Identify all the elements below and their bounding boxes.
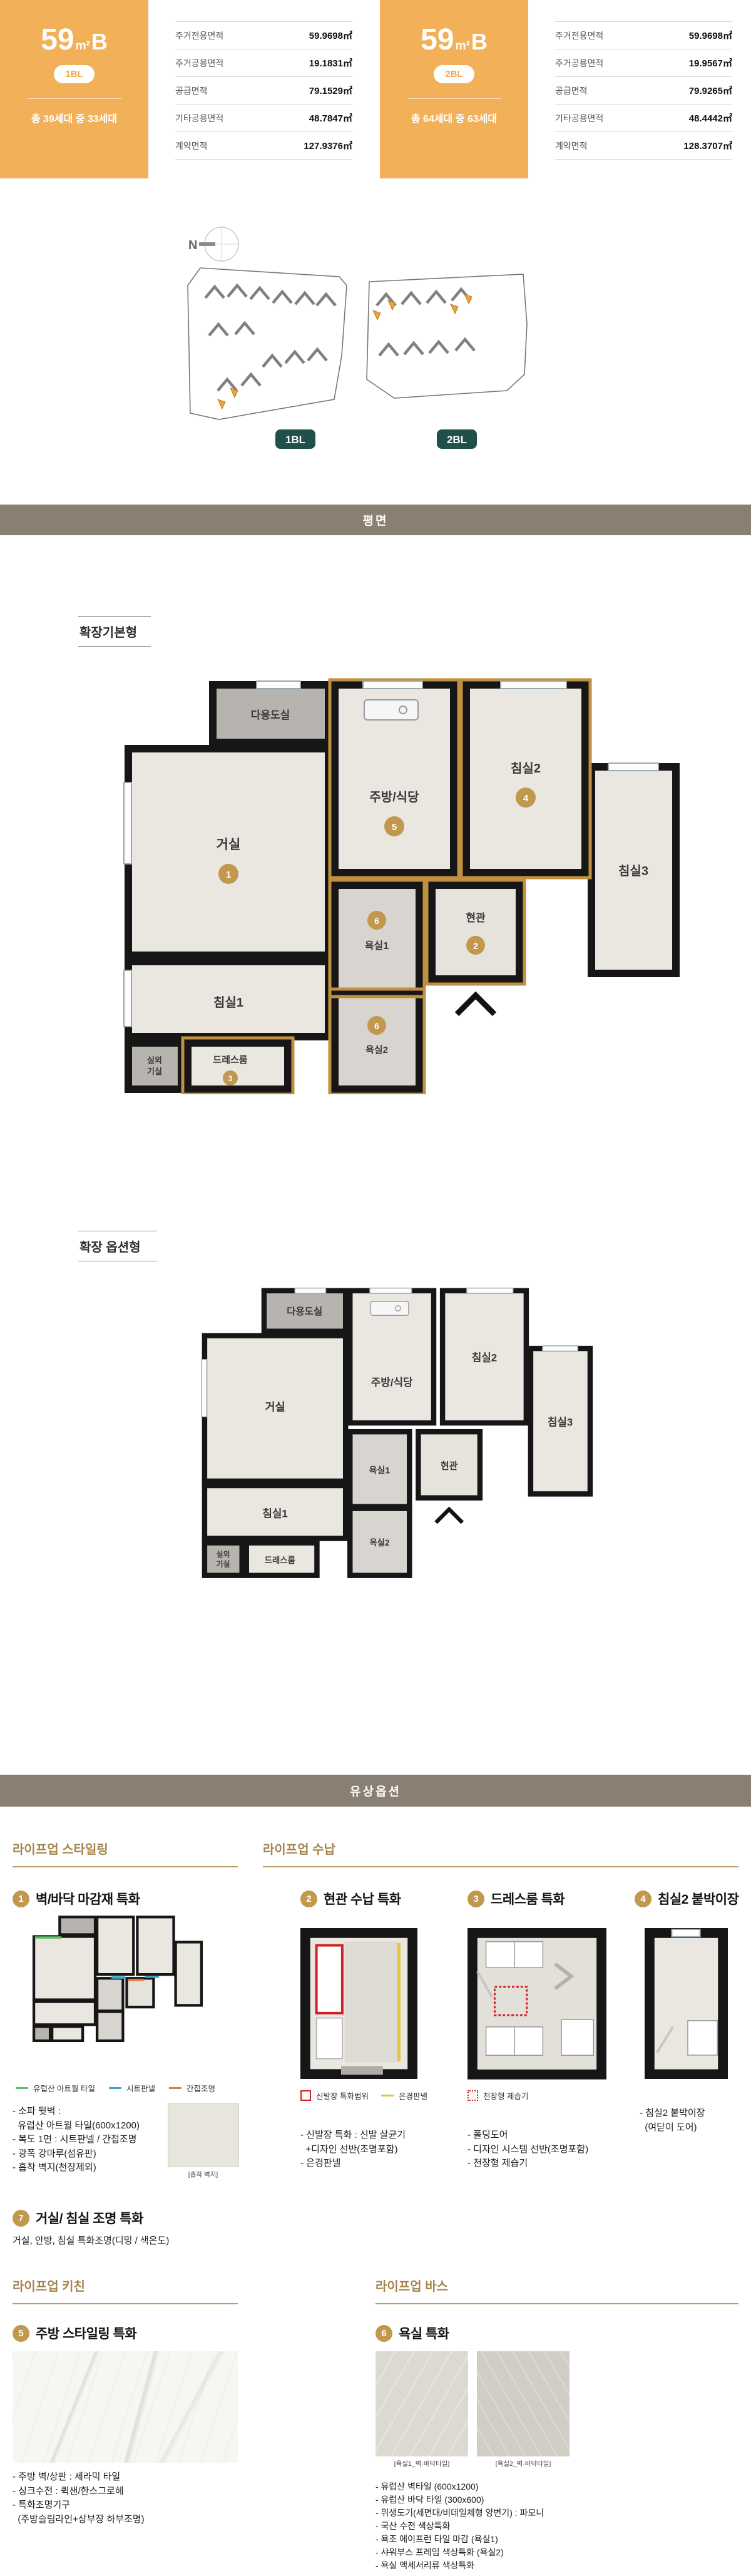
area-value: 59.9698㎡ — [689, 29, 732, 42]
svg-text:다용도실: 다용도실 — [287, 1306, 322, 1317]
item3-bullets: - 폴딩도어 - 디자인 시스템 선반(조명포함) - 천장형 제습기 — [467, 2128, 624, 2171]
item2-header: 2 현관 수납 특화 — [300, 1889, 401, 1908]
section-bar-floor-plan: 평면 — [0, 505, 751, 535]
bath1-tile-caption: [욕실1_벽·바닥타일] — [375, 2459, 468, 2468]
site-block-badges: 1BL 2BL — [275, 429, 477, 449]
households-text: 총 64세대 중 63세대 — [411, 110, 497, 125]
room-entrance — [432, 885, 519, 979]
svg-text:실외: 실외 — [216, 1549, 230, 1559]
item2-legend: 신발장 특화범위 은경판넬 — [300, 2090, 427, 2101]
legend-dehumidifier: 천장형 제습기 — [483, 2090, 528, 2101]
item2-bullets: - 신발장 특화 : 신발 살균기 +디자인 선반(조명포함) - 은경판넬 — [300, 2128, 451, 2171]
svg-text:욕실2: 욕실2 — [369, 1538, 389, 1547]
legend-mirror-panel: 은경판넬 — [399, 2090, 427, 2101]
area-label: 주거공용면적 — [555, 57, 603, 69]
room-bath2 — [335, 994, 419, 1089]
unit-size-unit: m² — [76, 40, 90, 52]
brochure-page: 59 m² B 1BL 총 39세대 중 33세대 주거전용면적59.9698㎡… — [0, 0, 751, 2576]
svg-text:거실: 거실 — [265, 1400, 285, 1413]
area-label: 기타공용면적 — [555, 112, 603, 125]
unit-size-type: B — [91, 31, 108, 53]
bed2-closet-diagram — [645, 1928, 728, 2079]
item1-number-badge: 1 — [13, 1891, 29, 1907]
item6-number-badge: 6 — [375, 2325, 392, 2342]
table-row: 기타공용면적48.7847㎡ — [175, 104, 352, 131]
num-kitchen: 5 — [392, 822, 397, 833]
bath1-tile-image — [375, 2351, 468, 2456]
item7-header: 7 거실/ 침실 조명 특화 — [13, 2209, 143, 2227]
area-value: 48.4442㎡ — [689, 111, 732, 125]
area-label: 계약면적 — [175, 140, 208, 152]
room-dress — [188, 1043, 288, 1089]
label-utility: 다용도실 — [251, 709, 290, 721]
svg-text:드레스룸: 드레스룸 — [265, 1556, 295, 1565]
block-badge: 2BL — [434, 65, 474, 83]
table-row: 공급면적79.9265㎡ — [555, 76, 732, 104]
item5-bullets: - 주방 벽/상판 : 세라믹 타일 - 싱크수전 : 퀵샌/한스그로헤 - 특… — [13, 2470, 238, 2527]
item2-number-badge: 2 — [300, 1891, 317, 1907]
divider — [28, 98, 121, 99]
legend-artwall: 유럽산 아트월 타일 — [33, 2082, 95, 2094]
entrance-arrow-icon — [457, 995, 494, 1014]
table-row: 주거전용면적59.9698㎡ — [175, 21, 352, 49]
bath-title: 라이프업 바스 — [375, 2276, 738, 2304]
item7-number-badge: 7 — [13, 2210, 29, 2227]
room-bath1 — [335, 885, 419, 992]
area-table-2bl: 주거전용면적59.9698㎡ 주거공용면적19.9567㎡ 공급면적79.926… — [528, 0, 751, 178]
households-text: 총 39세대 중 33세대 — [31, 110, 117, 125]
orange-line-icon — [169, 2087, 181, 2089]
unit-size-unit: m² — [456, 40, 470, 52]
num-bed2: 4 — [523, 793, 529, 804]
blue-line-icon — [109, 2087, 121, 2089]
unit-1bl-orange-panel: 59 m² B 1BL 총 39세대 중 33세대 — [0, 0, 148, 178]
unit-size-number: 59 — [41, 25, 74, 55]
area-label: 주거공용면적 — [175, 57, 223, 69]
item4-title: 침실2 붙박이장 — [658, 1889, 738, 1908]
svg-text:침실1: 침실1 — [262, 1507, 287, 1520]
entrance-storage-diagram — [300, 1928, 417, 2079]
unit-size: 59 m² B — [421, 25, 488, 55]
room-living — [128, 749, 329, 955]
shoe-cabinet-highlight — [317, 1946, 342, 2013]
entrance-arrow-icon — [436, 1509, 462, 1522]
item6-header: 6 욕실 특화 — [375, 2324, 449, 2343]
item7-description: 거실, 안방, 침실 특화조명(디밍 / 색온도) — [13, 2234, 169, 2247]
floor-plan-option: 다용도실 거실 주방/식당 침실2 침실3 욕실1 현관 침실1 실외 기실 드… — [163, 1285, 595, 1579]
area-value: 79.1529㎡ — [309, 84, 352, 97]
label-bath1: 욕실1 — [365, 940, 389, 952]
area-value: 128.3707㎡ — [683, 139, 732, 152]
table-row: 기타공용면적48.4442㎡ — [555, 104, 732, 131]
label-dress: 드레스룸 — [213, 1055, 247, 1065]
dressroom-diagram — [467, 1928, 606, 2080]
label-living: 거실 — [217, 838, 241, 852]
unit-2bl-orange-panel: 59 m² B 2BL 총 64세대 중 63세대 — [380, 0, 528, 178]
svg-text:침실3: 침실3 — [548, 1415, 573, 1428]
label-bed3: 침실3 — [618, 864, 648, 878]
label-bed2: 침실2 — [511, 761, 541, 776]
table-row: 계약면적127.9376㎡ — [175, 131, 352, 160]
num-bath1: 6 — [374, 916, 379, 926]
area-value: 48.7847㎡ — [309, 111, 352, 125]
green-line-icon — [16, 2087, 28, 2089]
item4-bullets: - 침실2 붙박이장 (여닫이 도어) — [640, 2106, 746, 2135]
finish-legend: 유럽산 아트월 타일 시트판넬 간접조명 — [16, 2082, 215, 2094]
svg-text:주방/식당: 주방/식당 — [371, 1377, 413, 1388]
area-value: 79.9265㎡ — [689, 84, 732, 97]
item7-title: 거실/ 침실 조명 특화 — [36, 2209, 143, 2227]
room-bed2 — [466, 685, 585, 873]
item6-title: 욕실 특화 — [399, 2324, 449, 2343]
num-dress: 3 — [228, 1074, 233, 1083]
yellow-line-icon — [381, 2095, 394, 2096]
svg-text:기실: 기실 — [216, 1559, 230, 1569]
area-label: 계약면적 — [555, 140, 588, 152]
plan-type-option-label: 확장 옵션형 — [78, 1231, 157, 1261]
area-label: 주거전용면적 — [555, 29, 603, 42]
site-block-2bl-outline — [367, 274, 527, 398]
area-label: 주거전용면적 — [175, 29, 223, 42]
label-kitchen: 주방/식당 — [369, 790, 419, 804]
section-bar-paid-options: 유상옵션 — [0, 1775, 751, 1807]
table-row: 계약면적128.3707㎡ — [555, 131, 732, 160]
svg-text:침실2: 침실2 — [472, 1352, 497, 1364]
label-bed1: 침실1 — [213, 995, 243, 1010]
bath2-tile-caption: [욕실2_벽·바닥타일] — [477, 2459, 570, 2468]
sink-icon — [370, 1301, 409, 1316]
wallpaper-swatch-caption: [흡착 벽지] — [158, 2170, 248, 2179]
unit-size-type: B — [471, 31, 488, 53]
unit-card-2bl: 59 m² B 2BL 총 64세대 중 63세대 주거전용면적59.9698㎡… — [380, 0, 751, 178]
area-label: 기타공용면적 — [175, 112, 223, 125]
sink-icon — [364, 700, 418, 720]
area-label: 공급면적 — [555, 85, 588, 97]
area-label: 공급면적 — [175, 85, 208, 97]
storage-title: 라이프업 수납 — [263, 1839, 738, 1867]
bath2-tile-image — [477, 2351, 570, 2456]
item4-number-badge: 4 — [635, 1891, 651, 1907]
num-entrance: 2 — [473, 941, 478, 951]
area-value: 19.1831㎡ — [309, 56, 352, 69]
item6-bullets: - 유럽산 벽타일 (600x1200) - 유럽산 바닥 타일 (300x60… — [375, 2480, 726, 2572]
table-row: 공급면적79.1529㎡ — [175, 76, 352, 104]
item3-header: 3 드레스룸 특화 — [467, 1889, 565, 1908]
red-box-icon — [300, 2090, 311, 2101]
item4-header: 4 침실2 붙박이장 — [635, 1889, 738, 1908]
label-entrance: 현관 — [466, 912, 486, 924]
styling-title: 라이프업 스타일링 — [13, 1839, 238, 1867]
item5-header: 5 주방 스타일링 특화 — [13, 2324, 136, 2343]
area-value: 127.9376㎡ — [304, 139, 352, 152]
table-row: 주거공용면적19.9567㎡ — [555, 49, 732, 76]
unit-size-number: 59 — [421, 25, 454, 55]
item2-title: 현관 수납 특화 — [324, 1889, 401, 1908]
item1-bullets: - 소파 뒷벽 : 유럽산 아트월 타일(600x1200) - 복도 1면 :… — [13, 2105, 166, 2175]
unit-card-1bl: 59 m² B 1BL 총 39세대 중 33세대 주거전용면적59.9698㎡… — [0, 0, 371, 178]
site-plan: 1BL 2BL — [181, 249, 582, 456]
item1-title: 벽/바닥 마감재 특화 — [36, 1889, 140, 1908]
unit-size: 59 m² B — [41, 25, 108, 55]
svg-text:욕실1: 욕실1 — [369, 1465, 391, 1475]
label-bath2: 욕실2 — [365, 1045, 388, 1055]
kitchen-title: 라이프업 키친 — [13, 2276, 238, 2304]
label-outdoor-unit: 실외 — [147, 1055, 162, 1065]
block-badge: 1BL — [54, 65, 94, 83]
legend-sheet: 시트판넬 — [126, 2082, 155, 2094]
num-bath2: 6 — [374, 1021, 379, 1031]
svg-text:현관: 현관 — [441, 1460, 458, 1471]
kitchen-marble-image — [13, 2351, 238, 2463]
badge-1bl: 1BL — [285, 434, 305, 446]
area-table-1bl: 주거전용면적59.9698㎡ 주거공용면적19.1831㎡ 공급면적79.152… — [148, 0, 371, 178]
red-dotted-box-icon — [467, 2090, 478, 2101]
item3-legend: 천장형 제습기 — [467, 2090, 528, 2101]
area-value: 19.9567㎡ — [689, 56, 732, 69]
item1-header: 1 벽/바닥 마감재 특화 — [13, 1889, 140, 1908]
badge-2bl: 2BL — [447, 434, 467, 446]
area-value: 59.9698㎡ — [309, 29, 352, 42]
legend-shoe-range: 신발장 특화범위 — [316, 2090, 369, 2101]
num-living: 1 — [226, 870, 231, 880]
plan-type-basic-label: 확장기본형 — [78, 616, 151, 647]
wallpaper-swatch — [168, 2103, 239, 2167]
table-row: 주거공용면적19.1831㎡ — [175, 49, 352, 76]
divider — [407, 98, 501, 99]
floor-plan-basic: 다용도실 거실 1 주방/식당 5 침실2 4 침실3 6 욕실1 현관 2 침… — [69, 676, 682, 1094]
legend-indirect: 간접조명 — [186, 2082, 215, 2094]
item3-number-badge: 3 — [467, 1891, 484, 1907]
item5-number-badge: 5 — [13, 2325, 29, 2342]
room-outdoor-unit — [128, 1043, 181, 1089]
item3-title: 드레스룸 특화 — [491, 1889, 565, 1908]
item5-title: 주방 스타일링 특화 — [36, 2324, 136, 2343]
label-outdoor-unit-2: 기실 — [147, 1067, 162, 1076]
table-row: 주거전용면적59.9698㎡ — [555, 21, 732, 49]
finish-mini-plan — [16, 1914, 203, 2042]
